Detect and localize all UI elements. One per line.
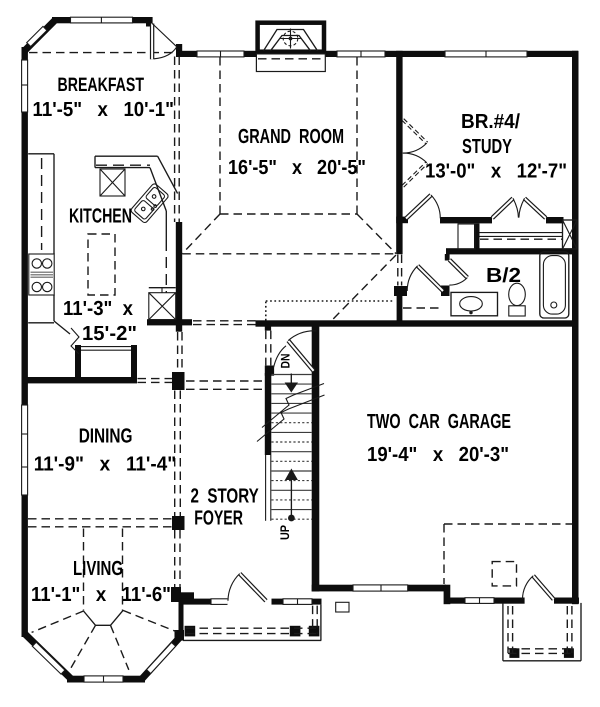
- svg-text:11'-3" x: 11'-3" x: [63, 298, 134, 320]
- svg-text:16'-5" x 20'-5": 16'-5" x 20'-5": [228, 157, 366, 179]
- svg-text:19'-4" x 20'-3": 19'-4" x 20'-3": [367, 444, 509, 466]
- svg-text:15'-2": 15'-2": [82, 323, 137, 345]
- svg-text:11'-5" x 10'-1": 11'-5" x 10'-1": [33, 99, 175, 121]
- svg-text:TWO CAR GARAGE: TWO CAR GARAGE: [367, 411, 511, 433]
- svg-text:FOYER: FOYER: [194, 508, 243, 530]
- svg-text:DINING: DINING: [79, 426, 133, 448]
- svg-text:STUDY: STUDY: [462, 136, 512, 158]
- svg-text:LIVING: LIVING: [73, 558, 123, 580]
- svg-text:BR.#4/: BR.#4/: [461, 111, 520, 133]
- svg-text:2 STORY: 2 STORY: [191, 486, 259, 508]
- svg-text:B/2: B/2: [486, 265, 521, 287]
- svg-text:11'-1" x 11'-6": 11'-1" x 11'-6": [31, 584, 171, 606]
- svg-text:13'-0" x 12'-7": 13'-0" x 12'-7": [425, 161, 567, 183]
- svg-text:11'-9" x 11'-4": 11'-9" x 11'-4": [34, 454, 177, 476]
- svg-text:UP: UP: [278, 525, 292, 540]
- svg-text:DN: DN: [279, 354, 293, 369]
- svg-text:BREAKFAST: BREAKFAST: [58, 74, 145, 96]
- svg-text:KITCHEN: KITCHEN: [69, 205, 132, 227]
- svg-text:GRAND ROOM: GRAND ROOM: [238, 126, 344, 148]
